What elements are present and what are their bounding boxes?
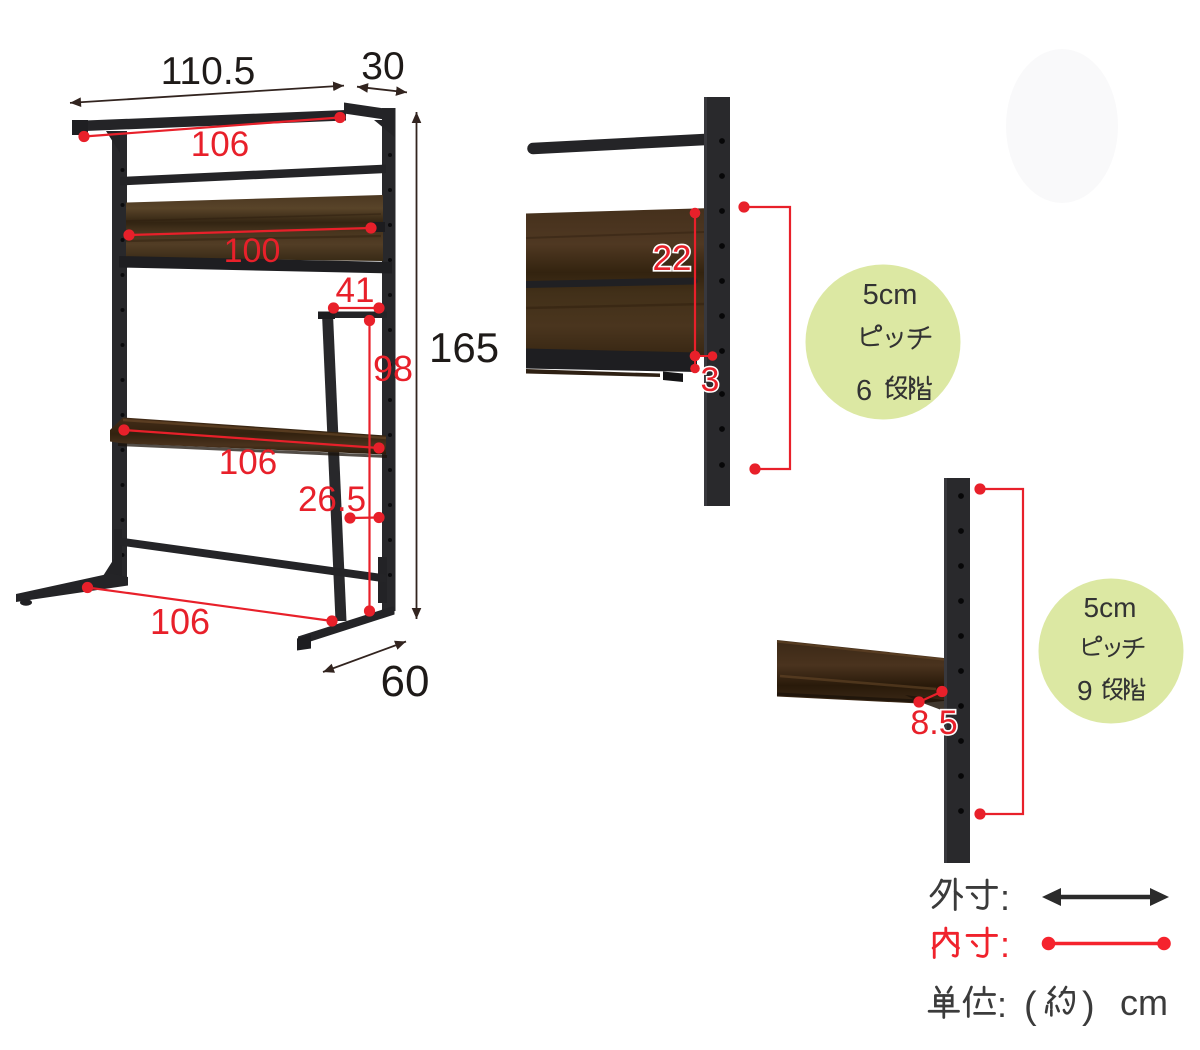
svg-text:9: 9 [1077, 675, 1093, 706]
svg-text:3: 3 [701, 361, 720, 399]
svg-text:6: 6 [856, 375, 872, 407]
svg-text:110.5: 110.5 [161, 50, 256, 93]
svg-text:8.5: 8.5 [910, 704, 957, 742]
svg-text:30: 30 [361, 45, 404, 88]
svg-text:cm: cm [1120, 982, 1168, 1023]
svg-text:5cm: 5cm [863, 279, 918, 311]
svg-text::: : [1000, 924, 1010, 965]
svg-text:98: 98 [373, 348, 413, 389]
svg-text:100: 100 [224, 232, 281, 270]
svg-text:106: 106 [219, 443, 277, 482]
svg-text:(: ( [1024, 985, 1037, 1027]
svg-text:60: 60 [381, 657, 430, 706]
svg-text::: : [1000, 877, 1010, 918]
svg-text:41: 41 [336, 271, 375, 310]
svg-text:165: 165 [429, 324, 499, 371]
svg-text:26.5: 26.5 [298, 480, 366, 519]
svg-text:106: 106 [150, 601, 210, 642]
svg-text:106: 106 [191, 125, 249, 164]
svg-text::: : [997, 984, 1007, 1025]
svg-text:): ) [1082, 985, 1095, 1027]
svg-text:22: 22 [653, 239, 692, 278]
svg-text:5cm: 5cm [1084, 592, 1137, 623]
